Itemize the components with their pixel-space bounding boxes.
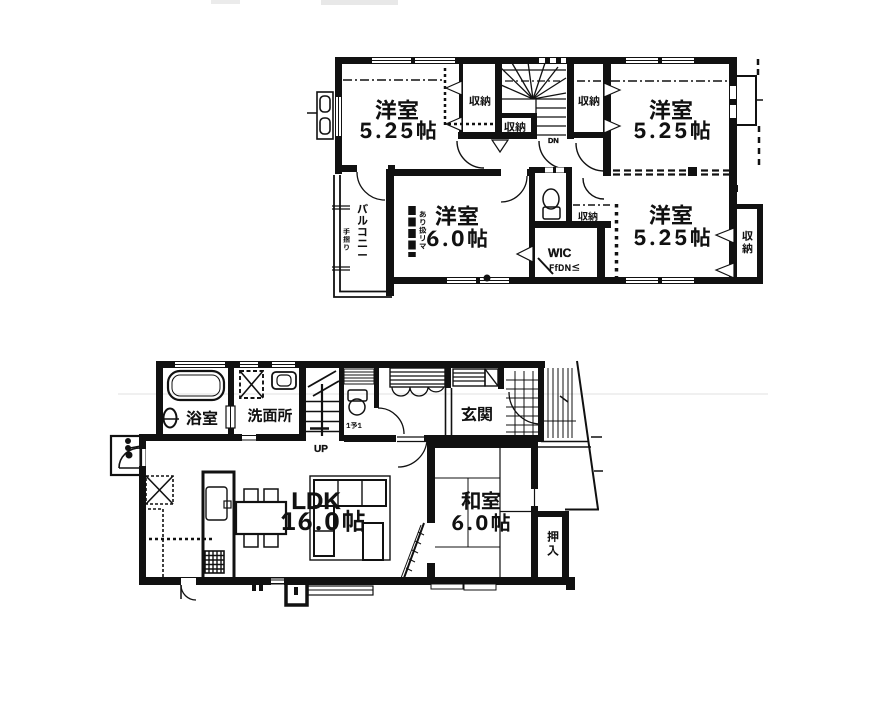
svg-text:LDK: LDK [291,488,341,515]
svg-text:WIC: WIC [548,246,572,260]
svg-text:UP: UP [314,444,328,455]
svg-text:DN: DN [548,136,559,145]
